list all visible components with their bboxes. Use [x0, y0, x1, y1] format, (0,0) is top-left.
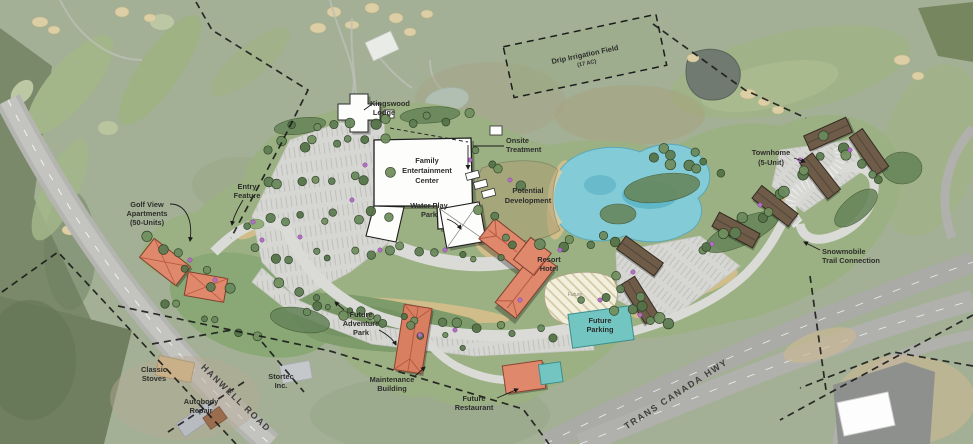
label-resort-hotel: Resort Hotel — [537, 255, 561, 273]
tree-icon — [371, 119, 381, 129]
label-classic-stoves: Classic Stoves — [141, 365, 167, 383]
tree-icon — [472, 147, 479, 154]
tree-icon — [692, 164, 701, 173]
tree-icon — [212, 316, 218, 322]
tree-icon — [494, 165, 503, 174]
tree-icon — [385, 246, 394, 255]
svg-text:Autobody: Autobody — [184, 397, 219, 406]
svg-text:Townhome: Townhome — [752, 148, 790, 157]
tree-icon — [298, 177, 307, 186]
tree-icon — [314, 124, 321, 131]
shrub-icon — [213, 278, 217, 282]
tree-icon — [636, 292, 645, 301]
tree-icon — [314, 248, 320, 254]
svg-text:Restaurant: Restaurant — [455, 403, 494, 412]
tree-icon — [251, 244, 259, 252]
tree-icon — [379, 319, 387, 327]
svg-text:Entry: Entry — [238, 182, 258, 191]
site-plan-canvas: Kingswood Lodge Family Entertainment Cen… — [0, 0, 973, 444]
tree-icon — [396, 242, 404, 250]
tree-icon — [266, 213, 275, 222]
tree-icon — [415, 247, 424, 256]
tree-icon — [351, 172, 359, 180]
shrub-icon — [518, 298, 522, 302]
tree-icon — [312, 176, 319, 183]
svg-text:Park: Park — [421, 210, 438, 219]
svg-text:Potential: Potential — [512, 186, 543, 195]
tree-icon — [385, 167, 395, 177]
tree-icon — [730, 227, 741, 238]
tree-icon — [142, 231, 152, 241]
tree-icon — [602, 293, 610, 301]
tree-icon — [819, 131, 829, 141]
shrub-icon — [350, 198, 354, 202]
shrub-icon — [848, 148, 852, 152]
tree-icon — [272, 179, 282, 189]
svg-text:Golf View: Golf View — [130, 200, 164, 209]
tree-icon — [617, 285, 625, 293]
svg-text:Classic: Classic — [141, 365, 167, 374]
tree-icon — [874, 176, 882, 184]
tree-icon — [816, 152, 824, 160]
tree-icon — [646, 317, 654, 325]
svg-text:Snowmobile: Snowmobile — [822, 247, 866, 256]
svg-text:Center: Center — [415, 176, 439, 185]
tree-icon — [366, 206, 376, 216]
svg-text:Inc.: Inc. — [275, 381, 288, 390]
svg-text:Future: Future — [589, 316, 612, 325]
svg-text:Future: Future — [350, 310, 373, 319]
tree-icon — [472, 324, 481, 333]
tree-icon — [737, 212, 748, 223]
tree-icon — [313, 302, 322, 311]
tree-icon — [381, 134, 390, 143]
tree-icon — [308, 135, 317, 144]
shrub-icon — [363, 163, 367, 167]
tree-icon — [285, 256, 293, 264]
tree-icon — [612, 271, 621, 280]
tree-icon — [174, 249, 182, 257]
tree-icon — [203, 266, 211, 274]
label-future-parking: Future Parking — [586, 316, 614, 334]
tree-icon — [225, 283, 235, 293]
tree-icon — [345, 118, 355, 128]
shrub-icon — [298, 235, 302, 239]
tree-icon — [443, 332, 448, 337]
tree-icon — [303, 308, 311, 316]
svg-text:Adventure: Adventure — [343, 319, 380, 328]
site-plan-map: Kingswood Lodge Family Entertainment Cen… — [0, 0, 973, 444]
svg-text:Stortec: Stortec — [268, 372, 293, 381]
label-golf-view-apartments: Golf View Apartments (50-Units) — [126, 200, 167, 227]
svg-text:Water Play: Water Play — [410, 201, 448, 210]
tree-icon — [565, 235, 573, 243]
tree-icon — [587, 241, 595, 249]
tree-icon — [313, 295, 319, 301]
tree-icon — [717, 169, 725, 177]
tree-icon — [330, 120, 338, 128]
shrub-icon — [188, 258, 192, 262]
svg-text:Maintenance: Maintenance — [370, 375, 415, 384]
tree-icon — [322, 218, 328, 224]
tree-icon — [465, 108, 474, 117]
tree-icon — [649, 153, 658, 162]
tree-icon — [161, 300, 170, 309]
tree-icon — [407, 321, 415, 329]
service-building — [490, 126, 502, 135]
tree-icon — [442, 118, 450, 126]
tree-icon — [460, 251, 466, 257]
tree-icon — [181, 265, 188, 272]
svg-text:Apartments: Apartments — [126, 209, 167, 218]
tree-icon — [361, 136, 369, 144]
svg-text:Future: Future — [463, 394, 486, 403]
tree-icon — [271, 254, 280, 263]
tree-icon — [609, 306, 618, 315]
svg-text:Kingswood: Kingswood — [370, 99, 410, 108]
shrub-icon — [468, 158, 472, 162]
shrub-icon — [251, 220, 255, 224]
svg-text:Stoves: Stoves — [142, 374, 166, 383]
shrub-icon — [758, 203, 762, 207]
tree-icon — [329, 209, 337, 217]
tree-icon — [491, 212, 499, 220]
shrub-icon — [418, 333, 422, 337]
tree-icon — [202, 316, 208, 322]
tree-icon — [471, 256, 477, 262]
tree-icon — [367, 251, 376, 260]
svg-text:Park: Park — [353, 328, 370, 337]
tree-icon — [549, 334, 557, 342]
tree-icon — [325, 304, 330, 309]
tree-icon — [799, 166, 808, 175]
tree-icon — [498, 254, 504, 260]
tree-icon — [295, 288, 304, 297]
tree-icon — [206, 283, 215, 292]
svg-text:Onsite: Onsite — [506, 136, 529, 145]
tree-icon — [857, 160, 866, 169]
tree-icon — [663, 318, 674, 329]
tree-icon — [460, 345, 465, 350]
tree-icon — [409, 120, 417, 128]
svg-text:Treatment: Treatment — [506, 145, 542, 154]
tree-icon — [244, 223, 251, 230]
svg-text:Building: Building — [377, 384, 407, 393]
tree-icon — [610, 237, 620, 247]
tree-icon — [159, 245, 169, 255]
tree-icon — [778, 186, 789, 197]
tree-icon — [764, 208, 773, 217]
tree-icon — [324, 255, 330, 261]
tree-icon — [702, 243, 711, 252]
tree-icon — [274, 278, 284, 288]
tree-icon — [508, 241, 516, 249]
tree-icon — [352, 247, 359, 254]
svg-text:Repair: Repair — [189, 406, 212, 415]
label-future-area: Future — [568, 292, 583, 298]
shrub-icon — [558, 248, 562, 252]
tree-icon — [666, 150, 676, 160]
svg-text:(5-Unit): (5-Unit) — [758, 158, 784, 167]
shrub-icon — [443, 248, 447, 252]
tree-icon — [385, 213, 394, 222]
tree-icon — [665, 159, 676, 170]
svg-text:Lodge: Lodge — [373, 108, 395, 117]
tree-icon — [700, 158, 707, 165]
tree-icon — [355, 215, 364, 224]
tree-icon — [173, 300, 180, 307]
tree-icon — [509, 330, 515, 336]
tree-icon — [637, 301, 647, 311]
svg-text:Entertainment: Entertainment — [402, 166, 452, 175]
tree-icon — [535, 239, 546, 250]
tree-icon — [264, 146, 272, 154]
shrub-icon — [453, 328, 457, 332]
svg-text:Trail Connection: Trail Connection — [822, 256, 880, 265]
tree-icon — [599, 231, 607, 239]
label-entry-feature: Entry Feature — [234, 182, 261, 200]
svg-text:Resort: Resort — [537, 255, 561, 264]
svg-text:Hotel: Hotel — [540, 264, 558, 273]
shrub-icon — [260, 238, 264, 242]
svg-text:Parking: Parking — [586, 325, 614, 334]
tree-icon — [718, 229, 728, 239]
shrub-icon — [508, 178, 512, 182]
svg-text:(50-Units): (50-Units) — [130, 218, 165, 227]
tree-icon — [538, 325, 545, 332]
tree-icon — [344, 136, 351, 143]
tree-icon — [452, 318, 462, 328]
tree-icon — [438, 318, 447, 327]
tree-icon — [474, 205, 483, 214]
tree-icon — [628, 305, 637, 314]
shrub-icon — [631, 270, 635, 274]
shrub-icon — [638, 313, 642, 317]
tree-icon — [359, 176, 368, 185]
svg-text:Development: Development — [505, 196, 552, 205]
tree-icon — [497, 321, 505, 329]
tree-icon — [297, 212, 304, 219]
svg-text:Family: Family — [415, 156, 439, 165]
tree-icon — [300, 142, 310, 152]
tree-icon — [423, 112, 430, 119]
shrub-icon — [598, 298, 602, 302]
tree-icon — [281, 218, 289, 226]
tree-icon — [431, 249, 439, 257]
tree-icon — [334, 140, 341, 147]
tree-icon — [691, 148, 699, 156]
tree-icon — [502, 234, 509, 241]
svg-text:Feature: Feature — [234, 191, 261, 200]
tree-icon — [401, 313, 407, 319]
shrub-icon — [378, 248, 382, 252]
tree-icon — [328, 178, 335, 185]
shrub-icon — [710, 242, 714, 246]
